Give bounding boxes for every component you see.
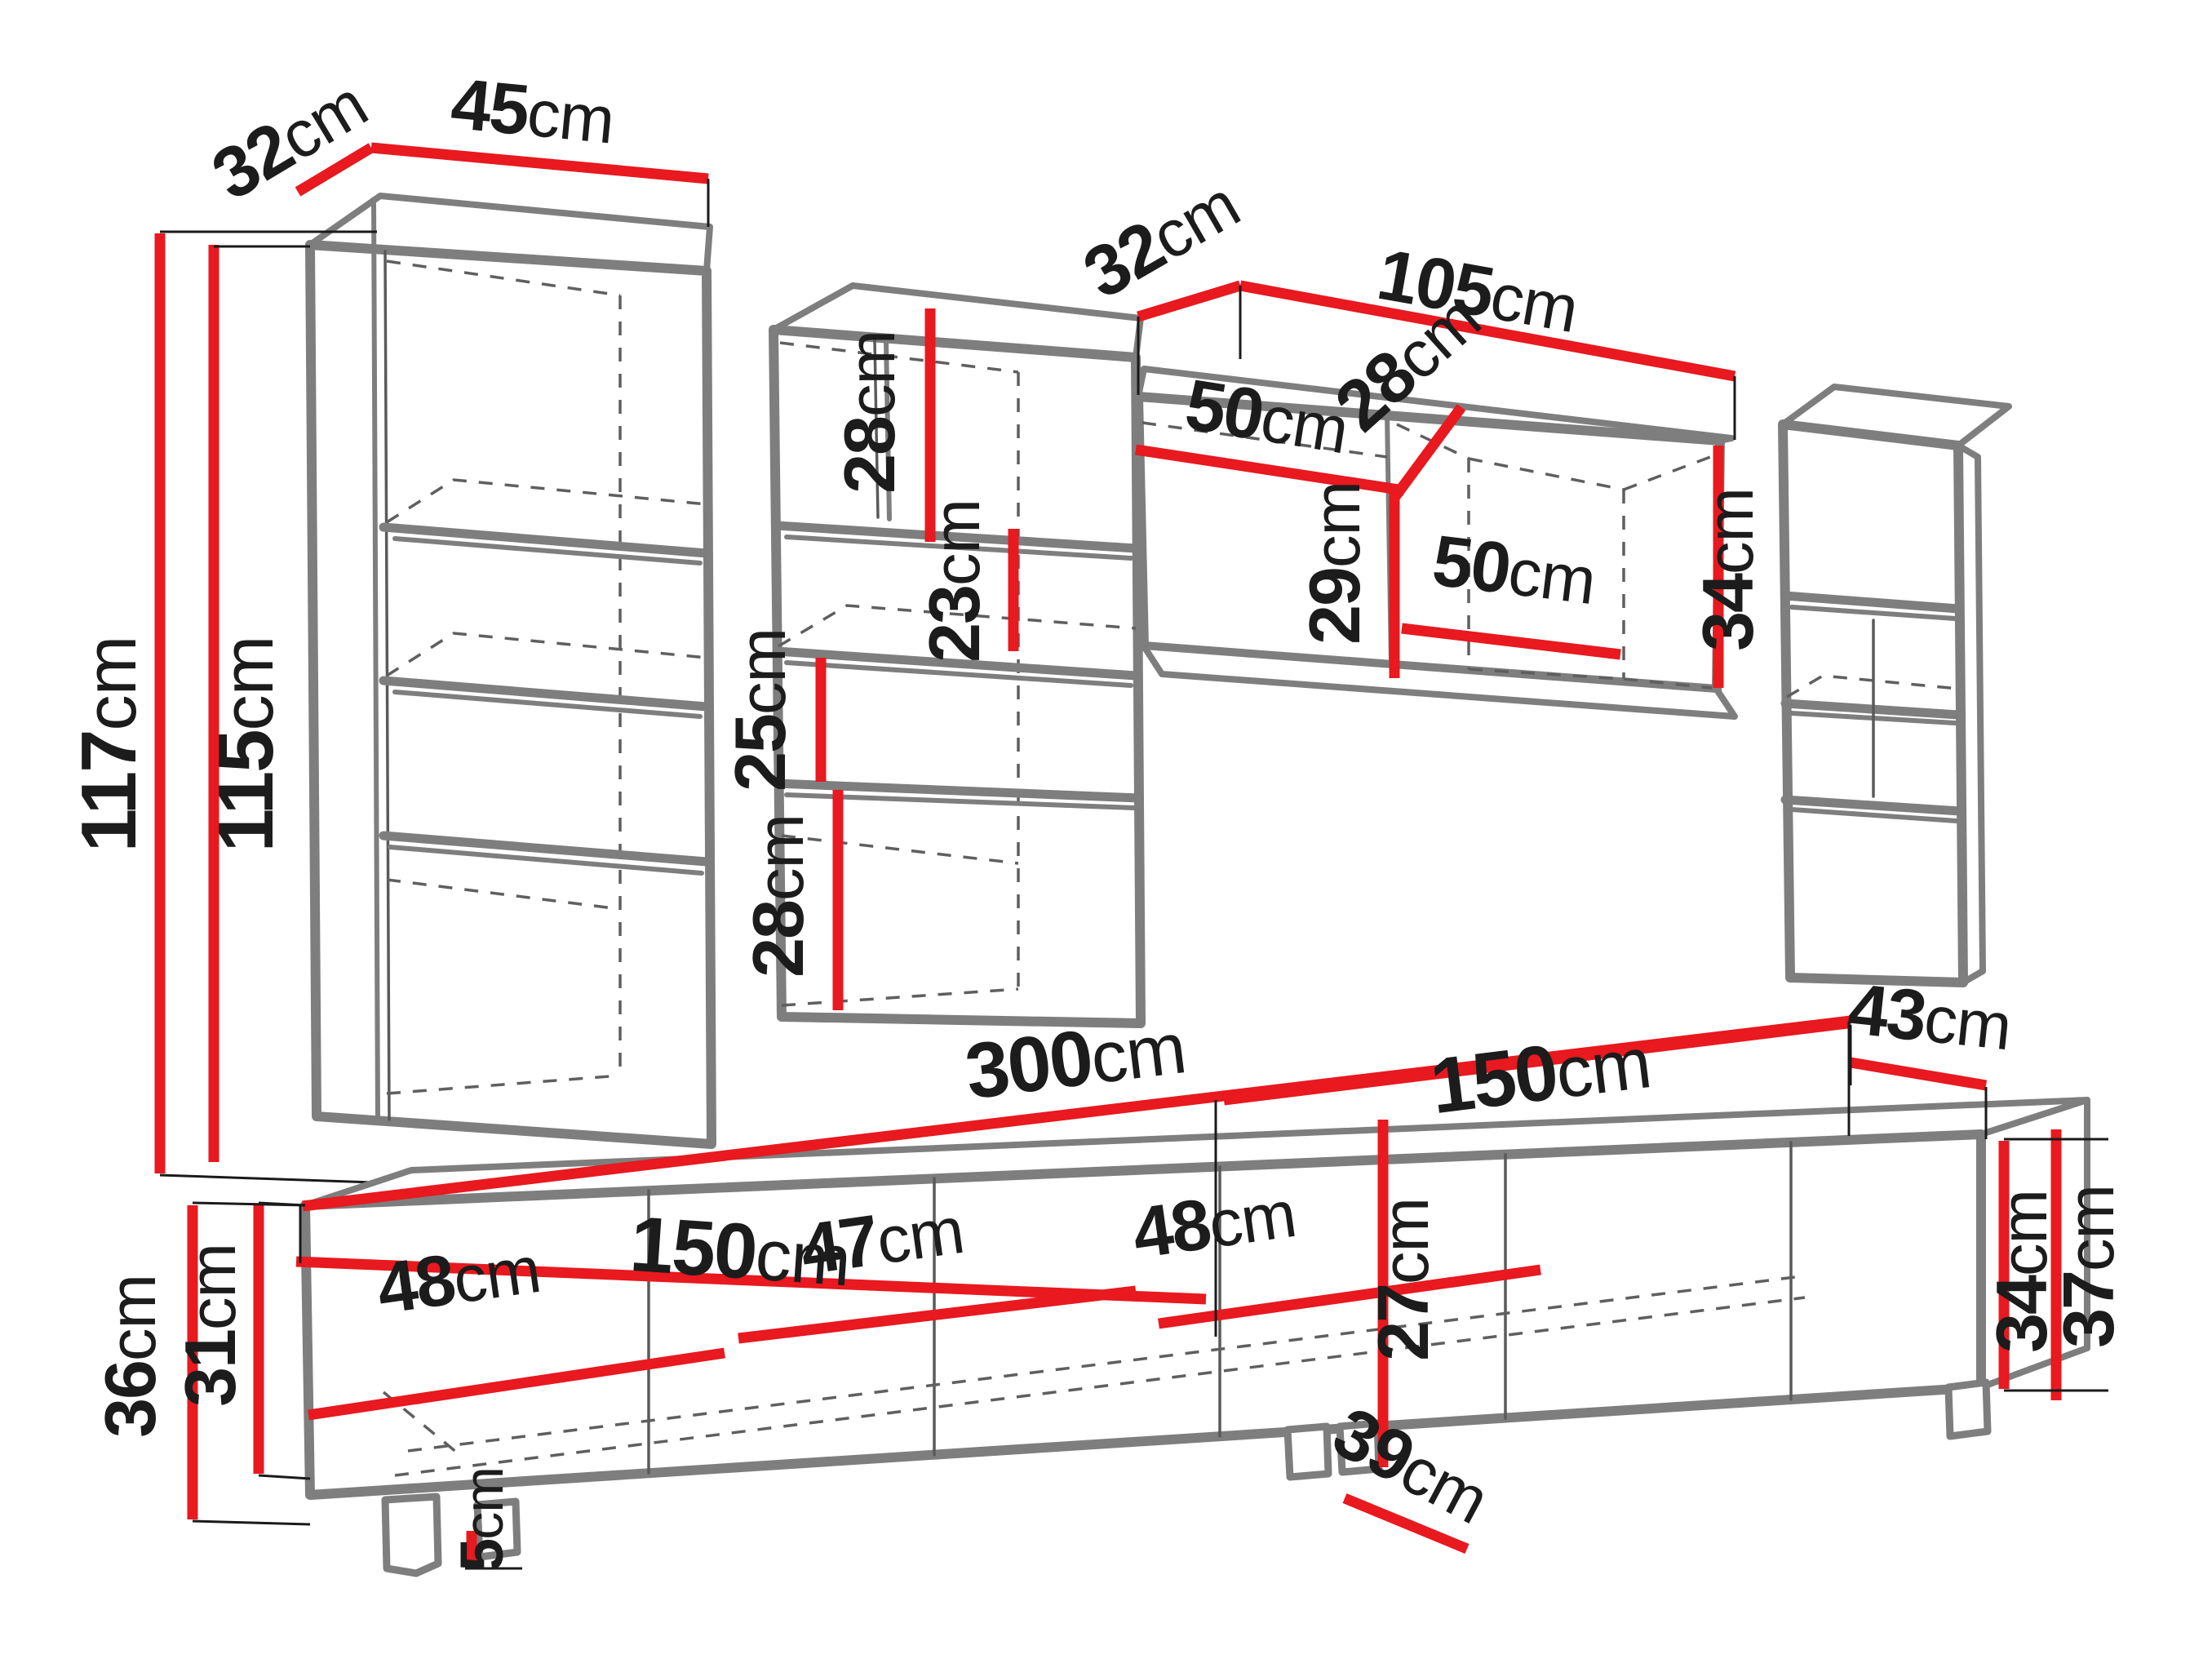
dim-label-right-width: 150cm	[1426, 1017, 1656, 1130]
dim-label-left-height-inner: 31cm	[170, 1244, 250, 1407]
dim-label-bottom-section: 28cm	[738, 814, 818, 978]
dim-label-height-outer: 117cm	[65, 637, 153, 853]
dim-label-leg-height: 5cm	[448, 1467, 516, 1572]
dim-label-mid-section: 25cm	[720, 628, 800, 792]
diagram-svg: 32cm 45cm 117cm 115cm 28cm 23cm 25cm 28c…	[0, 0, 2212, 1659]
middle-wall-cabinet: 28cm 23cm 25cm 28cm	[720, 286, 1141, 1023]
dim-label-left-height-outer: 36cm	[90, 1275, 171, 1438]
leg-left-1	[385, 1497, 438, 1573]
hanging-wall-cabinet: 32cm 105cm 50cm 28cm 29cm 50cm 34cm	[1070, 162, 1768, 716]
dim-label-right-height: 34cm	[1687, 488, 1768, 651]
dim-label-inner-height: 29cm	[1294, 481, 1375, 645]
dim-label-inner-height: 27cm	[1363, 1198, 1443, 1361]
dim-label-width: 45cm	[448, 63, 618, 159]
dim-label-height-inner: 115cm	[202, 637, 290, 853]
dim-label-shelf-section: 23cm	[914, 499, 995, 663]
ext-36-bottom	[193, 1521, 310, 1524]
furniture-dimension-diagram: 32cm 45cm 117cm 115cm 28cm 23cm 25cm 28c…	[0, 0, 2212, 1659]
dim-label-right-height-inner: 34cm	[1981, 1190, 2062, 1353]
right-wall-cabinet	[1783, 387, 2009, 983]
left-display-cabinet: 32cm 45cm 117cm 115cm	[65, 62, 711, 1185]
leg-mid-1	[1288, 1426, 1328, 1477]
dim-line-width-45	[371, 148, 708, 179]
leg-right	[1948, 1382, 1988, 1436]
dim-label-depth: 32cm	[198, 62, 379, 215]
dim-label-depth: 43cm	[1845, 968, 2015, 1065]
ext-31-bottom	[259, 1475, 310, 1479]
dim-line-43	[1851, 1062, 1986, 1085]
dim-line-depth-32	[1138, 286, 1240, 317]
dim-label-top-section: 28cm	[829, 330, 910, 494]
